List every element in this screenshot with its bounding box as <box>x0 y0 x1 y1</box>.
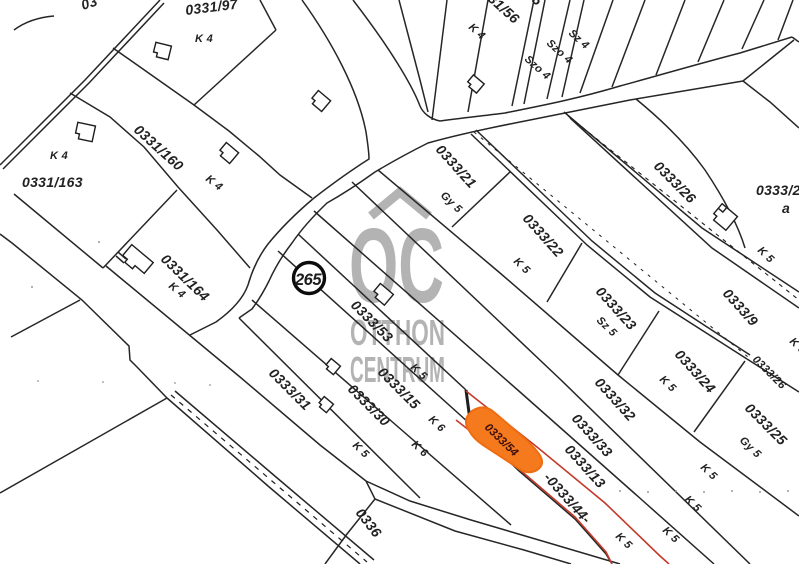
svg-text:K 4: K 4 <box>50 150 68 162</box>
svg-text:0333/2: 0333/2 <box>756 182 799 198</box>
svg-text:0331/163: 0331/163 <box>22 174 83 190</box>
svg-text:K 4: K 4 <box>195 33 213 45</box>
svg-text:a: a <box>782 200 790 216</box>
svg-text:265: 265 <box>294 271 322 289</box>
